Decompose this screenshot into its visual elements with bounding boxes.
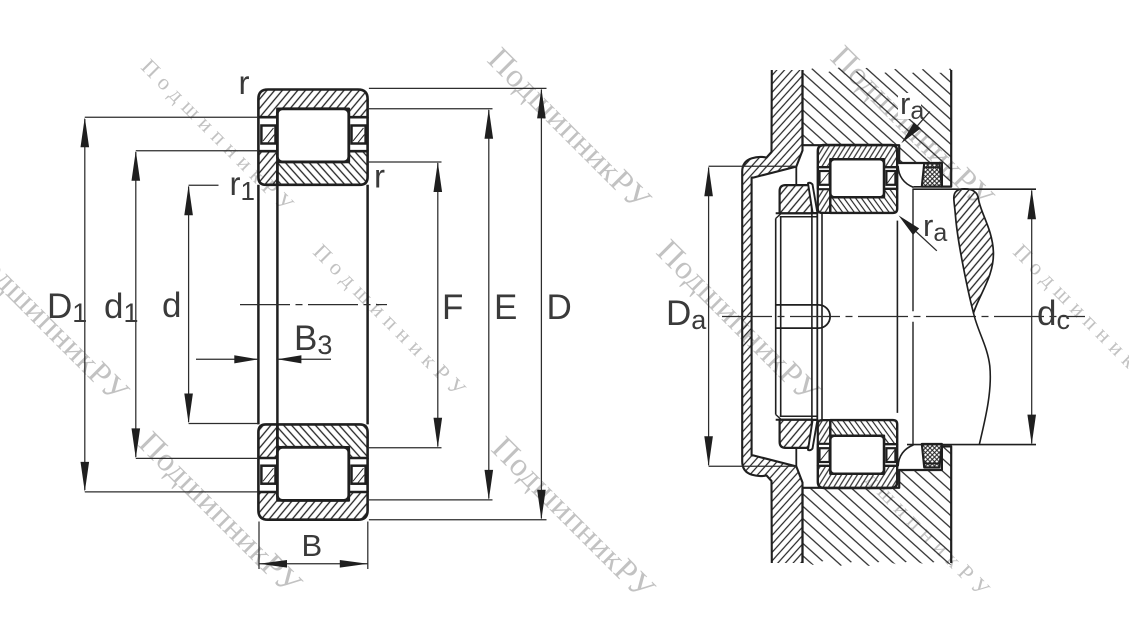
svg-text:B: B xyxy=(302,528,323,563)
svg-text:D1: D1 xyxy=(47,287,87,328)
svg-text:ПодшипникРУ: ПодшипникРУ xyxy=(480,41,657,218)
svg-text:E: E xyxy=(494,288,517,327)
svg-text:r: r xyxy=(239,64,250,101)
svg-text:r: r xyxy=(374,158,385,195)
svg-text:ra: ra xyxy=(923,208,947,247)
svg-text:D: D xyxy=(547,288,572,327)
svg-text:B3: B3 xyxy=(294,319,332,360)
svg-text:ПодшипникРУ: ПодшипникРУ xyxy=(484,430,661,607)
svg-text:d1: d1 xyxy=(104,287,139,328)
svg-text:F: F xyxy=(442,288,463,327)
svg-text:d: d xyxy=(162,286,181,325)
